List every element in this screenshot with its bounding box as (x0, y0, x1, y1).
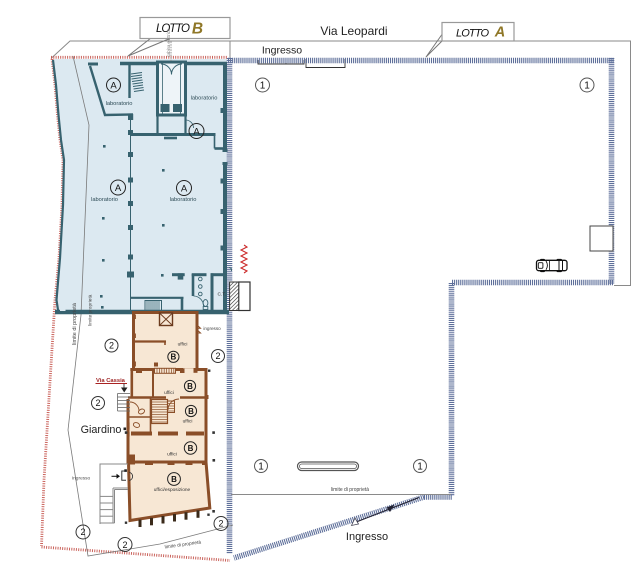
svg-text:Ingresso: Ingresso (72, 476, 91, 482)
svg-text:limite di proprietà: limite di proprietà (331, 487, 369, 493)
svg-text:laboratorio: laboratorio (91, 197, 118, 203)
svg-text:B: B (188, 407, 194, 416)
svg-text:A: A (193, 126, 200, 137)
svg-text:2: 2 (109, 341, 114, 351)
svg-text:A: A (115, 183, 122, 194)
svg-text:Ingresso: Ingresso (262, 45, 302, 57)
svg-text:Giardino: Giardino (81, 424, 122, 436)
svg-text:C.T.: C.T. (218, 292, 227, 298)
svg-text:LOTTO: LOTTO (156, 23, 190, 35)
svg-text:1: 1 (584, 81, 590, 92)
svg-text:2: 2 (122, 540, 127, 550)
svg-text:uffici: uffici (183, 419, 193, 425)
svg-text:2: 2 (95, 398, 100, 408)
svg-text:uffici/esposizione: uffici/esposizione (154, 487, 191, 493)
svg-text:laboratorio: laboratorio (191, 96, 218, 102)
svg-text:limite di proprietà: limite di proprietà (72, 302, 78, 345)
svg-text:1: 1 (260, 81, 266, 92)
svg-text:A: A (494, 25, 505, 41)
svg-text:A: A (181, 183, 188, 194)
svg-text:A: A (110, 80, 117, 91)
svg-text:B: B (187, 382, 193, 391)
svg-text:1: 1 (258, 461, 264, 472)
svg-text:B: B (192, 21, 203, 38)
svg-text:Ingresso: Ingresso (346, 531, 388, 543)
svg-text:2: 2 (80, 527, 85, 537)
svg-text:limite proprietà: limite proprietà (88, 294, 94, 326)
svg-text:B: B (171, 475, 177, 484)
svg-text:B: B (188, 444, 194, 453)
svg-text:2: 2 (215, 351, 220, 361)
svg-text:Via Leopardi: Via Leopardi (320, 24, 387, 38)
svg-text:uffici: uffici (164, 390, 174, 396)
svg-text:uffici: uffici (178, 342, 188, 348)
svg-text:uffici: uffici (167, 452, 177, 458)
svg-text:B: B (171, 353, 177, 362)
svg-text:laboratorio: laboratorio (106, 101, 133, 107)
svg-text:cabina elettrica: cabina elettrica (166, 28, 171, 57)
svg-text:1: 1 (417, 461, 423, 472)
svg-text:LOTTO: LOTTO (456, 28, 489, 40)
svg-text:laboratorio: laboratorio (170, 197, 197, 203)
svg-text:2: 2 (218, 519, 223, 529)
svg-text:ingresso: ingresso (203, 326, 221, 331)
